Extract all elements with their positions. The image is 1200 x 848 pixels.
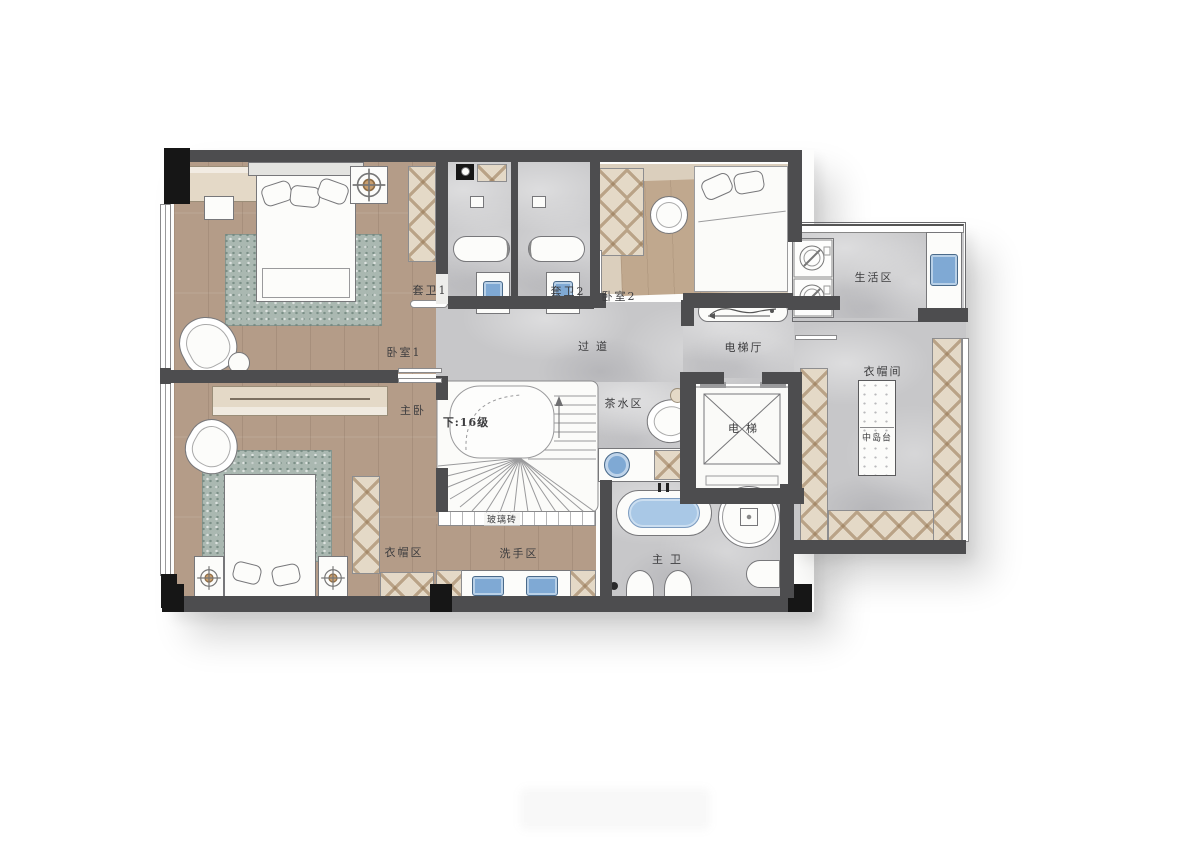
bath1-tub: [453, 236, 510, 262]
room-label-corridor: 过道: [578, 338, 614, 354]
wall-elevator-top-b: [762, 372, 790, 384]
label-glass-brick: 玻璃砖: [484, 513, 520, 526]
island-divider-line: [860, 427, 894, 428]
wall-elevator-left: [680, 372, 696, 502]
bedroom1-side-table: [204, 196, 234, 220]
wall-hall-left-stub: [681, 300, 694, 326]
room-label-bedroom1: 卧室1: [387, 344, 422, 360]
wall-bath2-right: [590, 162, 600, 298]
column-top-left: [164, 148, 190, 204]
room-label-elevator-hall: 电梯厅: [725, 339, 764, 355]
room-label-living-area: 生活区: [855, 269, 894, 285]
cloakroom-door-leaf: [795, 335, 837, 340]
wall-cloakroom-bottom: [794, 540, 966, 554]
crosshair-icon: [196, 565, 222, 591]
wall-elevator-right: [788, 372, 802, 502]
cloakroom-wardrobe-left: [800, 368, 828, 542]
wash-sink-right: [526, 576, 558, 596]
room-label-suite-bath1: 套卫1: [413, 282, 448, 298]
bath1-shower-fitting: [470, 196, 484, 208]
shower-head: [740, 508, 758, 526]
wall-top: [168, 150, 802, 162]
floor-plan-canvas: 玻璃砖: [0, 0, 1200, 848]
island-label: 中岛台: [862, 431, 892, 444]
zone-label-wash-area: 洗手区: [500, 545, 539, 561]
master-tub-faucet: [666, 483, 669, 492]
crosshair-fixture-box: [350, 166, 388, 204]
wall-bath-right: [780, 484, 794, 598]
window-left: [160, 204, 171, 576]
island-counter: [858, 380, 896, 476]
master-nightstand-left: [194, 556, 224, 600]
room-label-elevator: 电梯: [728, 420, 764, 436]
bedroom2-wardrobe: [598, 168, 644, 256]
bed1-duvet-fold: [262, 268, 350, 298]
living-sink: [930, 254, 958, 286]
room-label-master-bath: 主卫: [652, 551, 688, 567]
spiral-staircase: [436, 380, 600, 514]
wall-bedroom2-bottom: [683, 293, 793, 308]
master-pocket-door-b: [398, 378, 442, 383]
room-label-cloakroom: 衣帽间: [864, 363, 903, 379]
cloakroom-right-window: [962, 338, 969, 542]
bed1-pillow: [289, 184, 321, 208]
master-dresser: [212, 386, 388, 416]
wall-living-cloak-right: [918, 308, 968, 322]
master-pocket-door-a: [398, 368, 442, 373]
room-label-tea-area: 茶水区: [605, 395, 644, 411]
crosshair-icon: [351, 167, 387, 203]
bath2-shower-fitting: [532, 196, 546, 208]
cloakroom-wardrobe-right: [932, 338, 962, 542]
master-tub-faucet: [658, 483, 661, 492]
room-label-master-bedroom: 主卧: [400, 402, 426, 418]
wall-bedroom1-master: [171, 370, 398, 383]
wall-bath-divider: [511, 162, 518, 302]
master-nightstand-right: [318, 556, 348, 600]
wall-bottom: [168, 596, 812, 612]
elevator-shaft: [694, 386, 790, 494]
column-bottom-a: [162, 584, 184, 612]
bath1-top-cabinet: [477, 164, 507, 182]
watermark: [520, 788, 710, 830]
room-label-bedroom2: 卧室2: [602, 288, 637, 304]
crosshair-icon: [320, 565, 346, 591]
wall-bedroom1-bath: [436, 162, 448, 274]
wall-main-right-upper: [788, 150, 802, 242]
bedroom2-chair: [650, 196, 688, 234]
wardrobe-column-master: [352, 476, 380, 574]
toilet-right-wall: [746, 560, 782, 588]
master-dresser-line: [230, 398, 370, 400]
column-bottom-b: [430, 584, 452, 612]
window-left-break: [160, 368, 171, 384]
bed1-headboard: [248, 162, 364, 176]
wall-baths-bottom-1: [448, 296, 518, 309]
stairs-direction-note: 下:16级: [443, 414, 489, 430]
bath2-tub: [528, 236, 585, 262]
bedroom1-wardrobe-column: [408, 166, 436, 262]
wall-elevator-top-a: [696, 372, 724, 384]
zone-label-wardrobe-area: 衣帽区: [385, 544, 424, 560]
wall-stair-left-b: [436, 468, 448, 512]
cloakroom-wardrobe-bottom: [828, 510, 934, 542]
wall-bath-left: [600, 480, 612, 598]
wash-sink-left: [472, 576, 504, 596]
tea-round-sink: [604, 452, 630, 478]
bath1-vent-circle: [461, 167, 470, 176]
wall-hall-living: [788, 296, 840, 310]
room-label-suite-bath2: 套卫2: [551, 283, 586, 299]
